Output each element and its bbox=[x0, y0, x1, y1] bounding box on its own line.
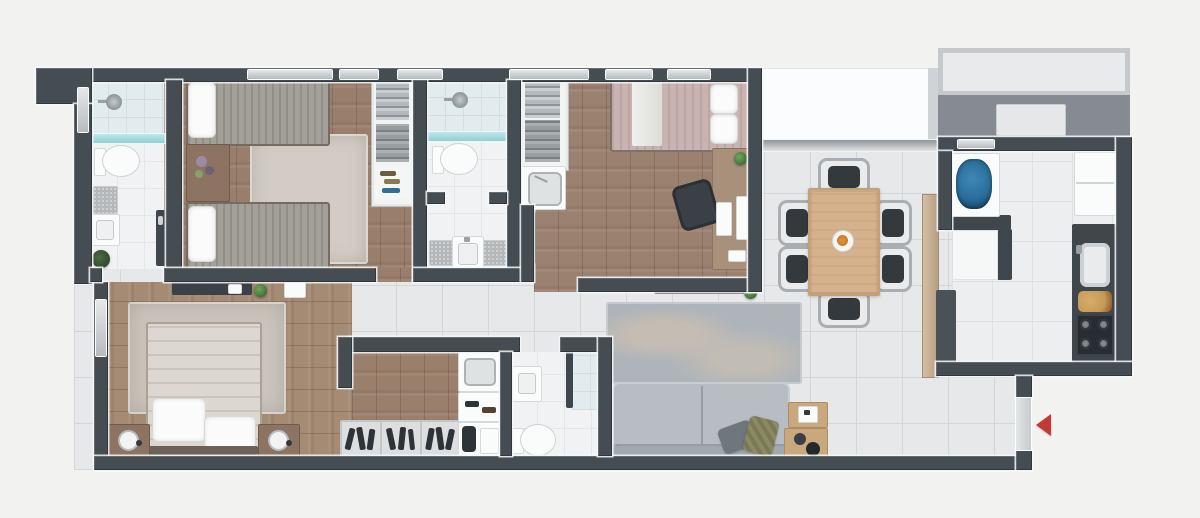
window-bedroom-1 bbox=[248, 70, 332, 79]
wall-entry-top bbox=[1016, 376, 1032, 400]
shower-head-icon bbox=[452, 92, 468, 108]
decor-bowl-icon bbox=[806, 442, 820, 456]
kitchen-white-cabinet bbox=[952, 230, 998, 280]
bed-2-sheet-fold bbox=[632, 80, 662, 146]
wall-master-closet bbox=[338, 337, 352, 388]
terrace-right-jamb bbox=[928, 68, 938, 144]
wall-vanity-bottom bbox=[413, 268, 521, 282]
fruit-icon bbox=[837, 235, 848, 246]
bedroom-1-door-threshold bbox=[376, 268, 413, 282]
utility-sink-basin bbox=[528, 172, 562, 206]
desk-note bbox=[728, 250, 746, 262]
exterior-wall-bottom bbox=[94, 456, 1032, 470]
wall-bedroom1-master bbox=[164, 268, 376, 282]
decor-dot-icon bbox=[286, 440, 292, 446]
kitchen-sink-right bbox=[1080, 243, 1110, 287]
wardrobe-bedroom-2 bbox=[521, 72, 568, 170]
shoe-rack bbox=[420, 420, 460, 460]
bathroom-1-shower-area bbox=[90, 80, 168, 136]
window-bedroom-2-right bbox=[668, 70, 710, 79]
sink-3-basin bbox=[518, 373, 536, 394]
remote-icon bbox=[228, 284, 242, 294]
bed-2-pillow bbox=[710, 84, 738, 114]
faucet-icon bbox=[1076, 245, 1082, 254]
flower-icon bbox=[205, 166, 214, 175]
wardrobe-bedroom-1 bbox=[372, 78, 417, 206]
shoe-rack bbox=[340, 420, 382, 460]
wall-stub-bathroom1-door bbox=[90, 268, 102, 282]
bath-mat-2b bbox=[482, 240, 510, 266]
entrance-arrow-icon bbox=[1036, 414, 1051, 436]
wall-kitchen-left bbox=[938, 151, 952, 230]
refrigerator-door-line bbox=[1076, 182, 1114, 184]
wall-kitchen-bottom bbox=[936, 362, 1132, 376]
sink-1-basin bbox=[96, 220, 114, 240]
window-bathroom-1-left bbox=[78, 88, 88, 132]
wall-bathroom2-left bbox=[413, 80, 427, 282]
cutting-board-with-food bbox=[1078, 291, 1112, 312]
wall-bedroom2-left-lower bbox=[521, 205, 534, 282]
decor-dot-icon bbox=[136, 440, 142, 446]
closet-shoe-shelf bbox=[458, 392, 502, 422]
twin-bed-b-pillow bbox=[188, 206, 216, 262]
sink-with-blue-dishes bbox=[956, 159, 992, 209]
window-bedroom-2-mid bbox=[606, 70, 652, 79]
wall-bathroom1-bedroom1 bbox=[166, 80, 182, 270]
floor-plan-canvas bbox=[0, 0, 1200, 518]
wall-bathroom2-right bbox=[507, 80, 521, 282]
service-planter-frame bbox=[938, 48, 1130, 96]
shoe-rack bbox=[380, 420, 422, 460]
twin-bed-a-pillow bbox=[188, 82, 216, 138]
bed-2-pillow bbox=[710, 114, 738, 144]
wall-bedroom2-bottom bbox=[578, 278, 762, 292]
entry-door bbox=[1016, 398, 1031, 450]
exterior-background-patch bbox=[1032, 376, 1200, 470]
living-room-rug bbox=[606, 302, 802, 384]
window-master-left bbox=[96, 300, 106, 356]
terrace-glass-rail bbox=[760, 140, 938, 151]
bathroom-2-shower-area bbox=[427, 80, 507, 134]
window-bedroom-2-left bbox=[510, 70, 588, 79]
wall-bathroom3-right bbox=[598, 337, 612, 456]
flower-leaf-icon bbox=[195, 170, 203, 178]
closet-sink-basin bbox=[464, 358, 496, 386]
window-kitchen bbox=[958, 140, 994, 148]
toilet-1-bowl bbox=[102, 145, 140, 177]
shower-head-icon bbox=[106, 94, 122, 110]
bath-mat-1 bbox=[92, 186, 118, 214]
wardrobe-clothes-rail bbox=[376, 124, 409, 162]
wardrobe-shoe-shelf bbox=[376, 166, 409, 198]
wall-bedroom2-dining bbox=[748, 68, 762, 292]
wall-stub-bathroom2-left bbox=[427, 192, 445, 204]
toilet-2-bowl bbox=[440, 143, 478, 175]
desk-papers bbox=[716, 202, 732, 236]
wall-entry-bottom bbox=[1016, 448, 1032, 470]
plant-bathroom-1-icon bbox=[92, 250, 110, 268]
door-handle-icon bbox=[158, 216, 163, 225]
toilet-3-bowl bbox=[520, 424, 556, 456]
bathroom-1-glass-partition bbox=[90, 134, 166, 143]
window-bathroom-2 bbox=[398, 70, 442, 79]
refrigerator bbox=[1074, 152, 1118, 216]
plant-master-icon bbox=[254, 284, 267, 297]
vanity-sink-2-basin bbox=[458, 243, 478, 265]
wardrobe-clothes-rail bbox=[525, 120, 560, 162]
bathroom-2-glass-partition bbox=[427, 132, 507, 141]
kitchen-peninsula-counter bbox=[947, 215, 1011, 230]
master-dresser bbox=[284, 282, 306, 298]
bathroom-3-glass-partition bbox=[566, 350, 573, 408]
bathroom-3-shower-area bbox=[572, 352, 600, 410]
closet-white-box bbox=[480, 428, 499, 454]
wardrobe-clothes-rail bbox=[376, 82, 409, 120]
kitchen-peninsula-counter-leg bbox=[997, 229, 1012, 280]
plant-bedroom-2-icon bbox=[734, 152, 747, 165]
cooktop bbox=[1076, 314, 1114, 356]
closet-dark-item bbox=[462, 426, 476, 452]
terrace-floor bbox=[760, 68, 930, 142]
exterior-wall-right bbox=[1116, 137, 1132, 376]
wall-closet-top bbox=[348, 337, 520, 352]
faucet-icon bbox=[464, 237, 470, 242]
decor-bowl-icon bbox=[794, 433, 806, 445]
master-headboard bbox=[146, 446, 258, 455]
wall-bathroom3-left bbox=[500, 352, 512, 456]
window-wardrobe bbox=[340, 70, 378, 79]
ac-unit bbox=[996, 104, 1066, 136]
wall-stub-bathroom2-right bbox=[489, 192, 507, 204]
art-glyph-icon bbox=[804, 410, 810, 415]
wardrobe-clothes-rail bbox=[525, 76, 560, 118]
master-pillow bbox=[152, 398, 206, 442]
flower-icon bbox=[196, 156, 207, 167]
wall-bathroom3-top bbox=[560, 337, 598, 352]
